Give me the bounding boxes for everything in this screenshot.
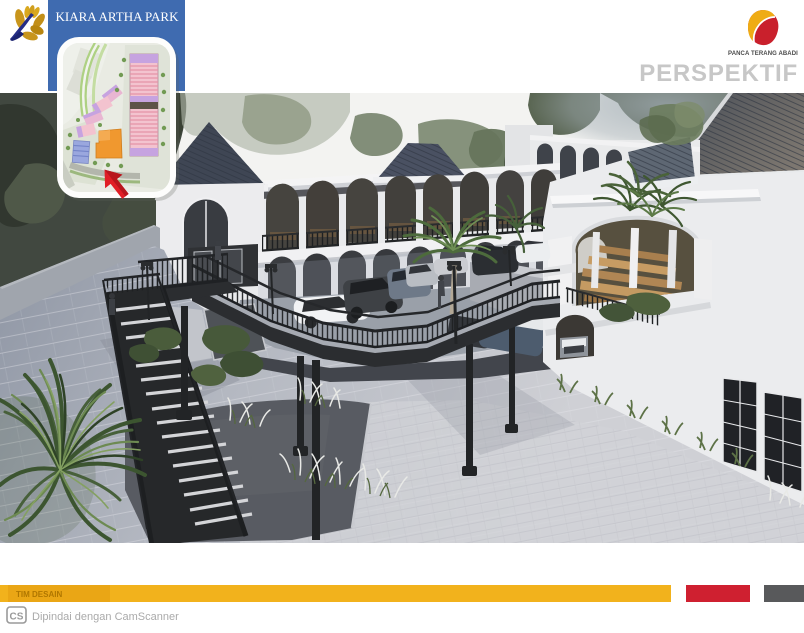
svg-text:Dipindai dengan CamScanner: Dipindai dengan CamScanner (32, 611, 179, 623)
svg-text:TIM DESAIN: TIM DESAIN (16, 590, 62, 599)
svg-text:PANCA TERANG ABADI: PANCA TERANG ABADI (728, 51, 798, 57)
svg-text:CS: CS (10, 612, 24, 623)
svg-text:KIARA ARTHA PARK: KIARA ARTHA PARK (56, 9, 180, 24)
svg-text:PERSPEKTIF: PERSPEKTIF (639, 60, 798, 87)
